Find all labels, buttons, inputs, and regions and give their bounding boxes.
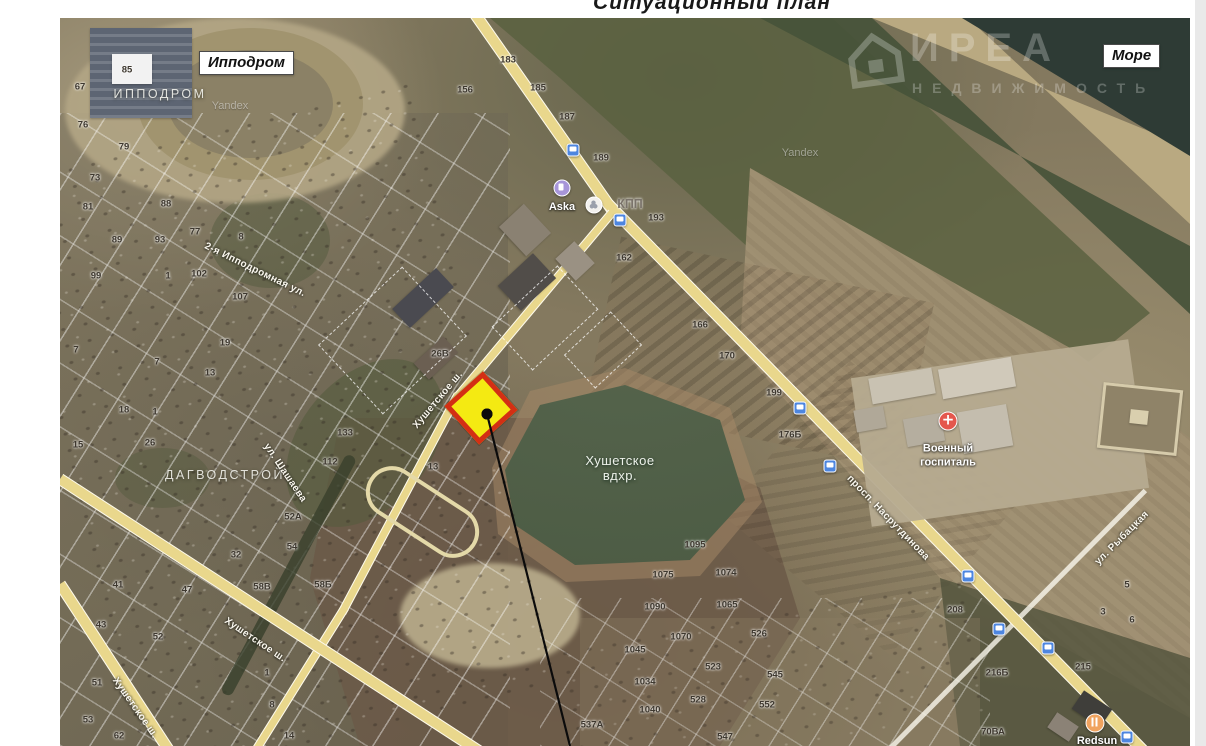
house-number-label: 18 — [119, 405, 130, 416]
house-number-label: 14 — [284, 731, 295, 742]
house-number-label: 26 — [145, 438, 156, 449]
hippodrome-callout: Ипподром — [199, 51, 294, 75]
house-number-label: 193 — [648, 213, 664, 224]
house-number-label: 47 — [182, 585, 193, 596]
house-number-label: 7 — [73, 345, 78, 356]
house-number-label: 215 — [1075, 662, 1091, 673]
house-roofs-pattern — [551, 572, 999, 746]
house-number-label: 58В — [253, 582, 270, 593]
house-number-label: 523 — [705, 662, 721, 673]
green-patch — [115, 448, 210, 508]
house-number-label: 81 — [83, 202, 94, 213]
house-number-label: 13 — [205, 368, 216, 379]
house-number-label: 51 — [92, 678, 103, 689]
street-name-label: 2-я Ипподромная ул. — [203, 241, 308, 300]
compound-building — [1129, 409, 1148, 425]
house-number-label: 41 — [113, 580, 124, 591]
house-number-label: 3 — [1100, 607, 1105, 618]
house-number-label: 176Б — [779, 430, 802, 441]
brand-watermark-subtitle: НЕДВИЖИМОСТЬ — [912, 80, 1155, 96]
house-number-label: 1065 — [716, 600, 737, 611]
house-number-label: 1074 — [715, 568, 736, 579]
khushet-highway-segment — [60, 581, 175, 746]
stadium-roof — [112, 54, 152, 84]
roadside-building — [1047, 712, 1079, 741]
house-number-label: 67 — [75, 82, 86, 93]
satellite-map[interactable]: YandexYandex ИППОДРОМДАГВОДСТРОЙ Хушетск… — [60, 18, 1190, 746]
house-number-label: 52А — [284, 512, 301, 523]
house-number-label: 15 — [73, 440, 84, 451]
house-number-label: 8 — [238, 232, 243, 243]
street-name-label: ул. Шашаева — [261, 442, 308, 505]
street-grid-pattern — [540, 598, 990, 746]
house-number-label: 52 — [153, 632, 164, 643]
house-number-label: 133 — [337, 428, 353, 439]
house-number-label: 528 — [690, 695, 706, 706]
house-number-label: 43 — [96, 620, 107, 631]
house-number-label: 73 — [90, 173, 101, 184]
pointer-line — [487, 414, 570, 746]
house-number-label: 1 — [152, 407, 157, 418]
industrial-building — [499, 204, 551, 256]
house-number-label: 1090 — [644, 602, 665, 613]
house-number-label: 1045 — [624, 645, 645, 656]
restaurant-label: Redsun — [1077, 735, 1117, 746]
village-area-tint — [580, 618, 980, 746]
situational-plan-page: Ситуационный план — [0, 0, 1206, 746]
house-number-label: 189 — [593, 153, 609, 164]
house-number-label: 77 — [190, 227, 201, 238]
house-number-label: 89 — [112, 235, 123, 246]
house-number-label: 58Б — [314, 580, 331, 591]
house-number-label: 552 — [759, 700, 775, 711]
house-number-label: 99 — [91, 271, 102, 282]
house-number-label: 156 — [457, 85, 473, 96]
house-number-label: 112 — [322, 457, 337, 468]
house-number-label: 162 — [616, 253, 632, 264]
map-provider-watermark: Yandex — [212, 100, 249, 112]
district-label: ДАГВОДСТРОЙ — [165, 468, 285, 482]
house-number-label: 526 — [751, 629, 767, 640]
house-number-label: 537А — [581, 720, 604, 731]
house-number-label: 6 — [1129, 615, 1134, 626]
house-number-label: 545 — [767, 670, 783, 681]
house-number-label: 102 — [191, 269, 207, 280]
house-number-label: 5 — [1124, 580, 1129, 591]
brand-watermark: ИРЕА НЕДВИЖИМОСТЬ — [848, 24, 1190, 114]
house-number-label: 76 — [78, 120, 89, 131]
bare-sand-patch — [400, 563, 580, 668]
map-provider-watermark: Yandex — [782, 147, 819, 159]
house-number-label: 107 — [232, 292, 248, 303]
house-number-label: 13 — [428, 462, 439, 473]
house-number-label: 1 — [264, 668, 269, 679]
house-number-label: 19 — [220, 338, 231, 349]
house-number-label: 1095 — [684, 540, 705, 551]
house-number-label: 7 — [154, 357, 159, 368]
bus-icon — [824, 460, 837, 473]
house-number-label: 187 — [559, 112, 575, 123]
house-number-label: 70ВА — [981, 727, 1005, 738]
sea-callout: Море — [1103, 44, 1160, 68]
house-number-label: 166 — [692, 320, 708, 331]
house-number-label: 1034 — [634, 677, 655, 688]
reservoir-label: Хушетское вдхр. — [585, 453, 654, 483]
house-number-label: 1040 — [639, 705, 660, 716]
plot-anchor-dot — [482, 409, 493, 420]
house-number-label: 62 — [114, 731, 125, 742]
brand-watermark-name: ИРЕА — [910, 26, 1061, 71]
right-margin — [1190, 0, 1206, 746]
khushet-road-segment — [252, 605, 349, 746]
house-number-label: 79 — [119, 142, 130, 153]
house-number-label: 1070 — [670, 632, 691, 643]
fuel-icon — [554, 180, 571, 197]
house-icon — [845, 29, 906, 90]
house-number-label: 32 — [231, 550, 242, 561]
green-patch — [210, 193, 330, 288]
house-number-label: 170 — [719, 351, 735, 362]
house-number-label: 1075 — [652, 570, 673, 581]
house-number-label: 54 — [287, 542, 298, 553]
house-number-label: 93 — [155, 235, 166, 246]
house-number-label: 199 — [766, 388, 782, 399]
house-number-label: 216Б — [986, 668, 1009, 679]
house-number-label: 88 — [161, 199, 172, 210]
house-number-label: 53 — [83, 715, 94, 726]
house-number-label: 1 — [165, 271, 170, 282]
page-title: Ситуационный план — [593, 0, 831, 15]
house-number-label: 547 — [717, 732, 733, 743]
house-number-label: 208 — [947, 605, 963, 616]
house-number-label: 8 — [269, 700, 274, 711]
highlighted-plot-marker — [444, 371, 517, 444]
highway-segment — [470, 18, 617, 213]
fuel-label: Aska — [549, 201, 575, 215]
hospital-building — [957, 404, 1014, 454]
